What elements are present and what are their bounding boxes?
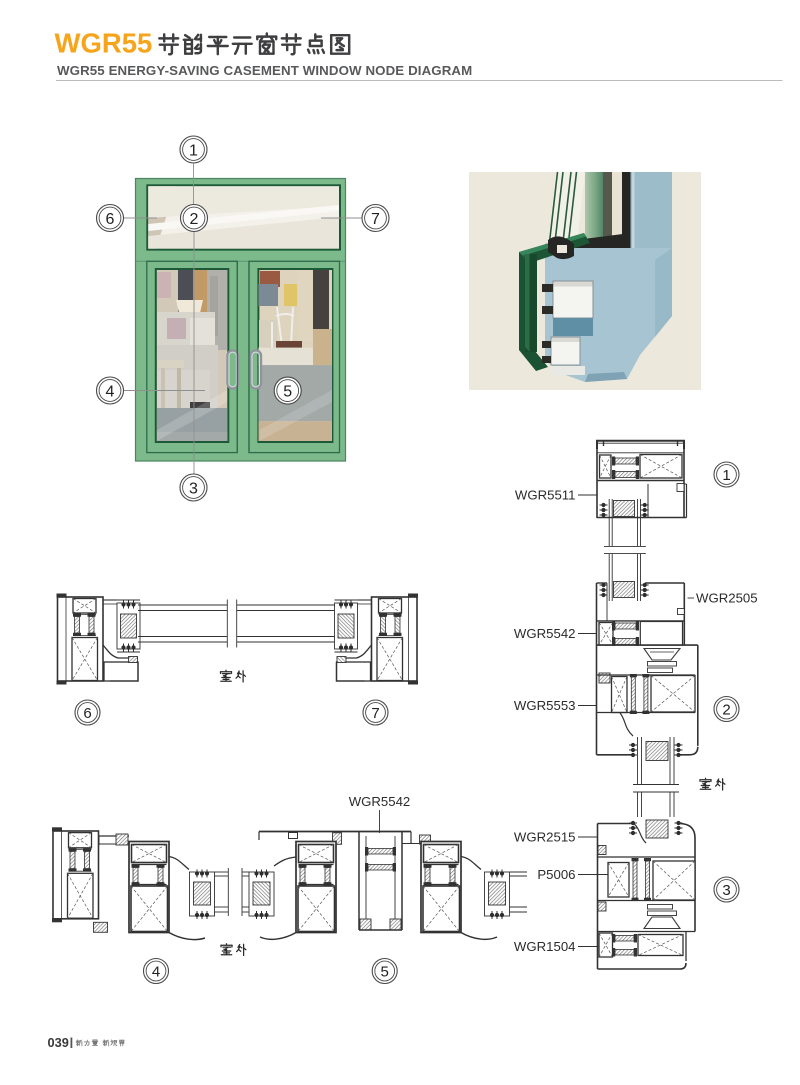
svg-text:WGR5542: WGR5542 (514, 626, 576, 641)
svg-text:3: 3 (189, 480, 198, 497)
svg-text:5: 5 (381, 963, 389, 980)
svg-text:P5006: P5006 (537, 867, 575, 882)
svg-text:039: 039 (48, 1035, 69, 1050)
svg-text:7: 7 (371, 211, 380, 228)
svg-text:WGR55: WGR55 (55, 27, 153, 58)
svg-text:4: 4 (152, 963, 160, 980)
svg-text:WGR5553: WGR5553 (514, 698, 576, 713)
svg-text:5: 5 (283, 383, 292, 400)
svg-text:2: 2 (190, 211, 199, 228)
svg-text:WGR2505: WGR2505 (696, 591, 758, 606)
svg-text:1: 1 (722, 467, 730, 484)
svg-text:7: 7 (371, 705, 379, 722)
svg-text:6: 6 (106, 211, 115, 228)
svg-text:4: 4 (106, 383, 115, 400)
svg-text:3: 3 (722, 882, 730, 899)
svg-text:6: 6 (83, 705, 91, 722)
svg-text:WGR5511: WGR5511 (515, 488, 576, 503)
svg-text:2: 2 (722, 701, 730, 718)
svg-text:WGR5542: WGR5542 (349, 794, 411, 809)
svg-text:WGR55 ENERGY-SAVING CASEMENT W: WGR55 ENERGY-SAVING CASEMENT WINDOW NODE… (57, 63, 472, 78)
svg-text:1: 1 (189, 142, 198, 159)
svg-text:WGR1504: WGR1504 (514, 939, 576, 954)
svg-text:WGR2515: WGR2515 (514, 830, 576, 845)
